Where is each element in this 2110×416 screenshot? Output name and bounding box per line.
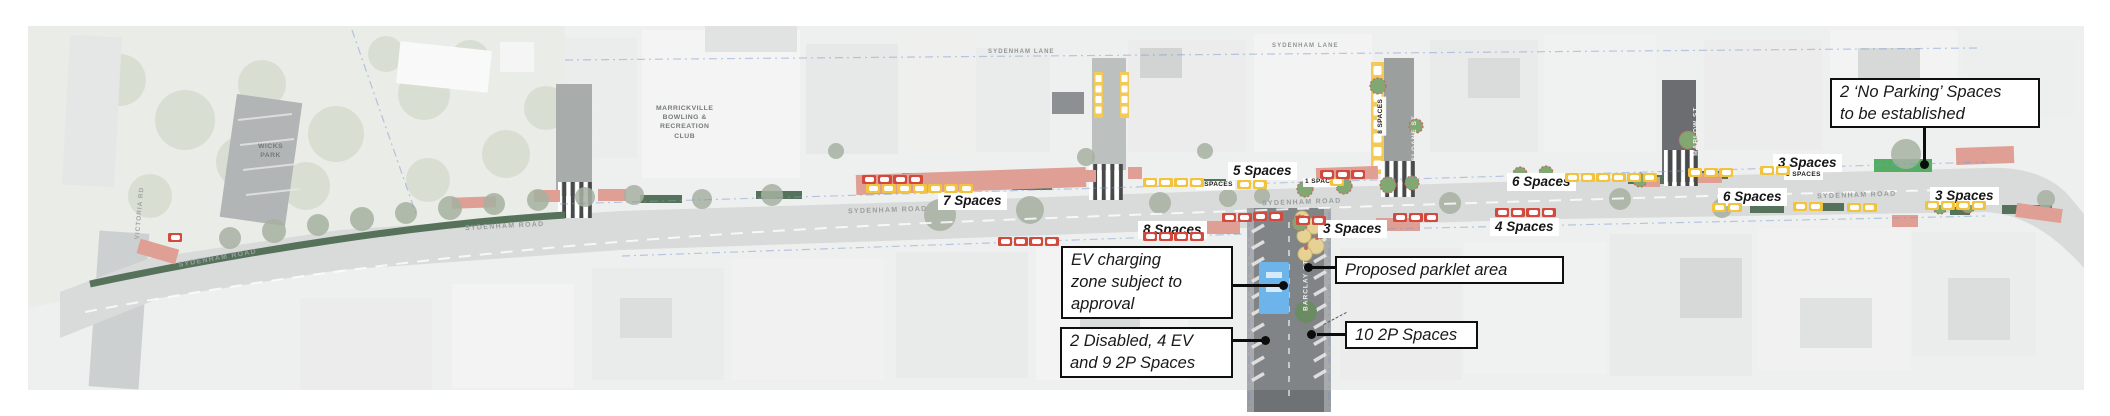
map-artwork (0, 0, 2110, 416)
callout-disabled-ev-2p: 2 Disabled, 4 EV and 9 2P Spaces (1060, 327, 1233, 378)
leader-line-p2 (1317, 333, 1347, 336)
leader-dot-parklet (1304, 263, 1313, 272)
leader-line-disabled (1231, 339, 1265, 342)
callout-ev-charging: EV charging zone subject to approval (1061, 246, 1233, 319)
leader-dot-disabled (1261, 336, 1270, 345)
leader-dot-no-parking (1920, 160, 1929, 169)
leader-line-ev (1231, 284, 1283, 287)
callout-no-parking: 2 ‘No Parking’ Spaces to be established (1830, 78, 2040, 128)
callout-parklet: Proposed parklet area (1335, 256, 1564, 284)
parking-plan-map: 7 Spaces8 Spaces5 Spaces3 Spaces4 Spaces… (0, 0, 2110, 416)
leader-dot-ev (1279, 281, 1288, 290)
leader-line-parklet (1312, 266, 1337, 269)
callout-10-2p: 10 2P Spaces (1345, 321, 1478, 349)
leader-line-no-parking (1923, 128, 1926, 164)
leader-dot-p2 (1307, 330, 1316, 339)
